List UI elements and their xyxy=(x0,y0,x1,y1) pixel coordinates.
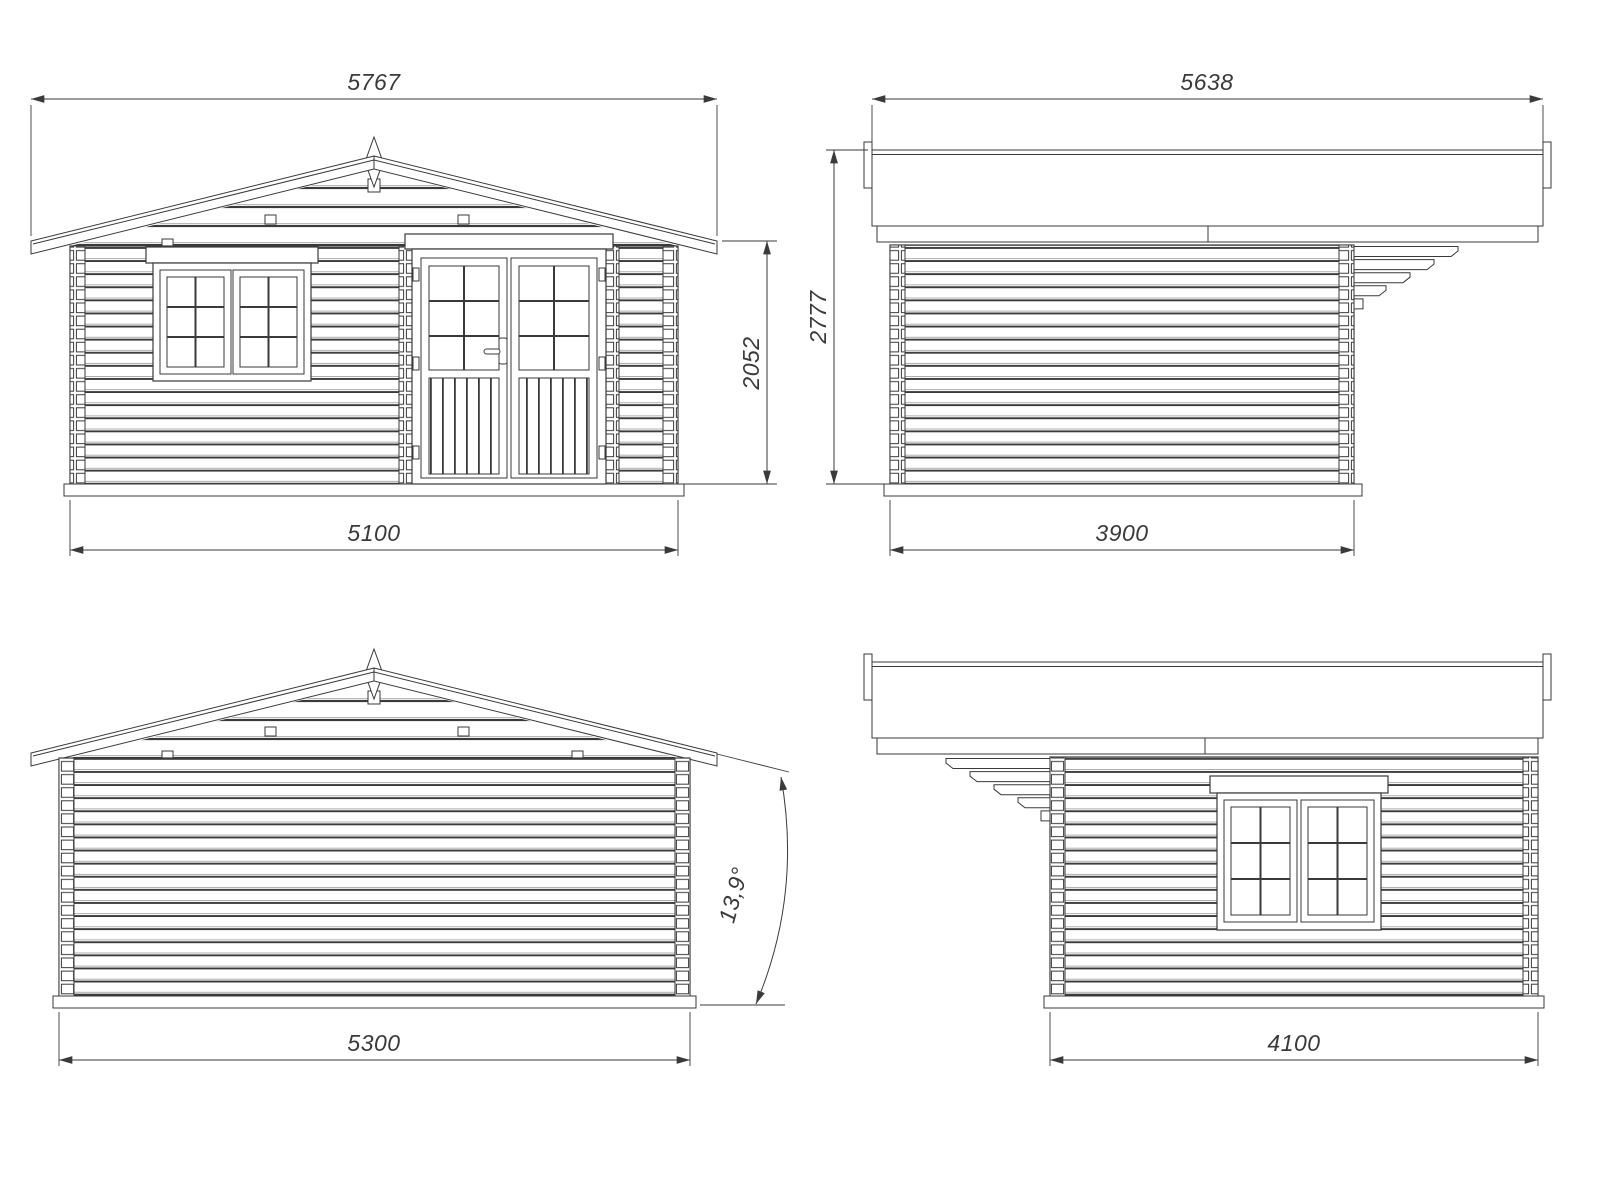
door-hinge xyxy=(599,446,605,459)
gable-fascia-end xyxy=(1543,654,1551,700)
stepped-log-end xyxy=(1354,247,1458,257)
dim-rear-wall-width: 5300 xyxy=(59,1012,690,1066)
door-hinge xyxy=(413,357,419,370)
dim-side-wall-depth-value: 3900 xyxy=(1095,520,1148,546)
corner-log-ends-left xyxy=(70,246,85,484)
side-window xyxy=(1210,776,1388,930)
gable-purlin-tab xyxy=(458,215,469,224)
door-panel-boards xyxy=(429,378,499,474)
gable-purlin-tab xyxy=(265,727,276,736)
cabin-elevations-drawing: 5767 2052 5100 xyxy=(0,0,1600,1200)
stepped-log-end xyxy=(946,759,1050,769)
dim-side-wall-depth: 3900 xyxy=(890,500,1354,556)
corner-log-ends-right xyxy=(1339,245,1354,484)
dim-front-wall-width: 5100 xyxy=(70,500,678,556)
roof-panel xyxy=(872,662,1543,738)
gable-fascia-end xyxy=(864,142,872,188)
eaves-board xyxy=(877,738,1538,754)
dim-front-wall-height-value: 2052 xyxy=(738,336,764,390)
dim-front-roof-width-value: 5767 xyxy=(347,69,401,95)
angle-arc xyxy=(756,777,788,1004)
door-head-casing xyxy=(405,234,613,249)
right-side-elevation-view: 4100 xyxy=(864,654,1551,1066)
front-window xyxy=(146,247,318,381)
stepped-log-end xyxy=(970,772,1050,782)
dim-front-wall-width-value: 5100 xyxy=(347,520,400,546)
gable-purlin-tab xyxy=(458,727,469,736)
dim-front-wall-height: 2052 xyxy=(684,241,777,484)
stepped-log-end xyxy=(1041,811,1050,821)
stepped-log-end xyxy=(1354,299,1363,309)
technical-drawing-sheet: 5767 2052 5100 xyxy=(0,0,1600,1200)
base-plate xyxy=(1044,996,1544,1008)
dim-rear-wall-width-value: 5300 xyxy=(347,1030,400,1056)
dim-side-roof-length-value: 5638 xyxy=(1180,69,1233,95)
roof-panel xyxy=(872,150,1543,226)
door-hinge xyxy=(599,357,605,370)
base-plate xyxy=(53,996,696,1008)
corner-log-ends-right xyxy=(663,246,678,484)
door-hinge xyxy=(413,446,419,459)
dim-side-total-height-value: 2777 xyxy=(805,290,831,345)
dim-right-side-wall-depth-value: 4100 xyxy=(1267,1030,1320,1056)
door-hinge xyxy=(413,268,419,281)
stepped-log-end xyxy=(994,785,1050,795)
log-wall xyxy=(59,758,690,996)
corner-log-ends-left xyxy=(1050,757,1065,996)
door-handle xyxy=(484,349,500,354)
extension-line xyxy=(717,754,789,772)
door-jamb-log-ends xyxy=(399,246,412,484)
corner-log-ends-right xyxy=(1523,757,1538,996)
corner-log-ends-left xyxy=(890,245,905,484)
corner-log-ends-right xyxy=(675,758,690,996)
base-plate xyxy=(64,484,684,496)
stepped-log-end xyxy=(1018,798,1050,808)
stepped-log-end xyxy=(1354,286,1386,296)
door-hinge xyxy=(599,268,605,281)
window-head-casing xyxy=(1210,776,1388,793)
dim-side-roof-length: 5638 xyxy=(872,69,1543,144)
front-double-door xyxy=(405,234,613,484)
rear-elevation-view: 5300 13,9° xyxy=(31,649,789,1066)
stepped-log-end xyxy=(1354,273,1410,283)
log-wall xyxy=(890,245,1354,484)
dim-roof-pitch-angle: 13,9° xyxy=(700,754,789,1005)
front-elevation-view: 5767 2052 5100 xyxy=(31,69,777,556)
gable-fascia-end xyxy=(1543,142,1551,188)
window-head-casing xyxy=(146,247,318,263)
stepped-log-end xyxy=(1354,260,1434,270)
corner-log-ends-left xyxy=(59,758,74,996)
dim-roof-pitch-angle-value: 13,9° xyxy=(713,864,753,925)
door-panel-boards xyxy=(519,378,589,474)
left-side-elevation-view: 5638 2777 3900 xyxy=(805,69,1551,556)
door-jamb-log-ends xyxy=(606,246,619,484)
gable-fascia-end xyxy=(864,654,872,700)
gable-purlin-tab xyxy=(265,215,276,224)
dim-right-side-wall-depth: 4100 xyxy=(1050,1012,1538,1066)
base-plate xyxy=(884,484,1362,496)
